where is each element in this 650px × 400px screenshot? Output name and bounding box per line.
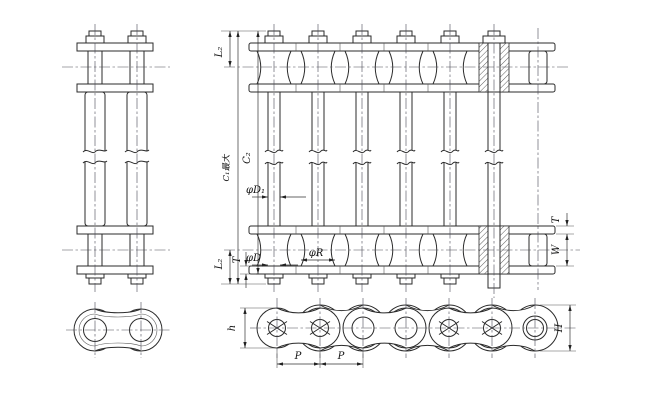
drawing-canvas: L₂ C₁最大 C₂ φD₁ L₂ T φD φR T W h H P P <box>0 0 650 400</box>
technical-drawing: L₂ C₁最大 C₂ φD₁ L₂ T φD φR T W h H P P <box>0 0 650 400</box>
dim-label-phi-d1: φD₁ <box>246 185 265 196</box>
dim-label-c2: C₂ <box>242 152 253 164</box>
dim-label-l2-top: L₂ <box>214 47 225 59</box>
dim-label-c1-max: C₁最大 <box>221 153 232 181</box>
side-view <box>250 298 578 358</box>
front-view <box>62 24 170 292</box>
dim-label-t-right: T <box>551 215 562 223</box>
dim-label-cap-h: H <box>554 323 565 333</box>
dim-label-l2-bottom: L₂ <box>214 259 225 271</box>
dim-label-t-left: T <box>232 255 243 263</box>
dim-label-w: W <box>551 244 562 255</box>
plan-view <box>224 24 580 298</box>
dim-label-p1: P <box>294 351 302 362</box>
dim-label-phi-r: φR <box>309 248 324 259</box>
link-plate-view <box>66 302 170 358</box>
dim-label-h: h <box>227 325 238 331</box>
dim-label-p2: P <box>337 351 345 362</box>
dim-label-phi-d: φD <box>246 253 261 264</box>
